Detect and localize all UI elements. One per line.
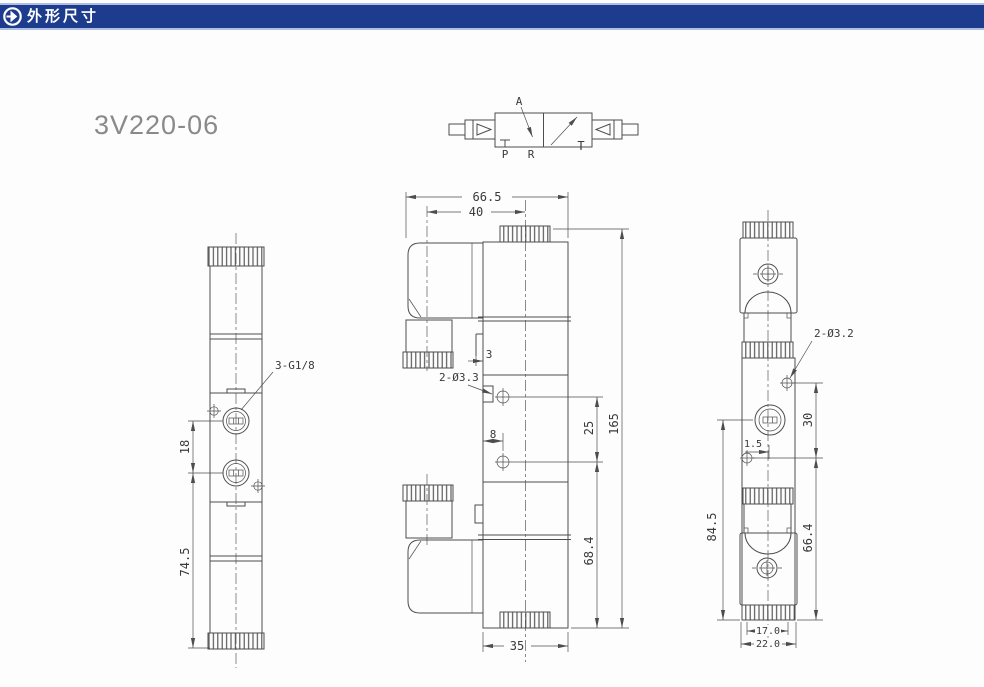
dim-body-width: 35 (510, 639, 524, 653)
dim-body-width-right: 17.0 (756, 626, 780, 637)
section-header-title: 外形尺寸 (27, 9, 99, 24)
middle-view-top-knurl (500, 226, 550, 242)
middle-view-solenoid-top (403, 243, 483, 368)
left-view-pilot-hole-upper (207, 404, 221, 418)
dim-bracket-thickness: 3 (486, 348, 493, 361)
right-view-neck-top (744, 313, 791, 342)
right-view-mount-hole (780, 375, 794, 391)
dim-mount-hole-spacing: 25 (582, 421, 596, 435)
schematic-position-right (544, 113, 593, 147)
schematic-port-r-label: R (528, 148, 535, 161)
left-view-port-label: 3-G1/8 (275, 359, 315, 372)
dim-overall-width-right: 22.0 (756, 639, 780, 650)
dim-port-to-base: 74.5 (178, 548, 192, 577)
right-view-port (755, 405, 785, 435)
schematic-port-a-label: A (516, 95, 523, 108)
schematic-port-t-label: T (577, 139, 584, 153)
schematic-port-p-label: P (502, 148, 509, 161)
left-view-bottom-knurl (208, 633, 264, 649)
right-view-neck-bottom (744, 504, 791, 533)
right-view-bottom-knurl (742, 605, 795, 620)
dim-base-to-hole: 68.4 (582, 537, 596, 566)
right-view-top-knurl (743, 222, 793, 238)
right-view-lower-ring (743, 488, 793, 504)
right-view-connector-top (740, 238, 797, 313)
left-view: 18 74.5 3-G1/8 (178, 233, 315, 668)
dim-overall-height-right: 84.5 (705, 513, 719, 542)
left-view-top-knurl (208, 247, 264, 266)
right-view: 2-Ø3.2 1.5 30 66.4 84.5 17.0 22.0 (705, 210, 854, 650)
dim-overall-width: 66.5 (473, 190, 502, 204)
dimension-drawing: A P R T (0, 0, 984, 687)
middle-view: 66.5 40 3 2-Ø3.3 8 25 68.4 165 35 (403, 190, 629, 662)
schematic-pilot-right (592, 120, 638, 139)
valve-schematic: A P R T (449, 95, 638, 161)
dim-hole-spacing: 30 (801, 413, 815, 427)
dim-hole-edge-offset: 8 (490, 428, 497, 441)
dim-port-spacing: 18 (178, 440, 192, 454)
section-header-bar: 外形尺寸 (0, 3, 984, 30)
middle-view-lower-tab (475, 505, 483, 523)
schematic-pilot-left (449, 120, 495, 139)
middle-view-bracket (476, 334, 483, 356)
middle-view-solenoid-bottom (403, 485, 483, 613)
right-view-connector-bottom (740, 533, 797, 605)
schematic-position-left (495, 107, 544, 147)
dim-port-center-offset: 1.5 (744, 439, 762, 450)
model-number: 3V220-06 (94, 110, 219, 141)
right-view-upper-ring (742, 342, 793, 358)
dim-coil-center-offset: 40 (469, 205, 483, 219)
left-view-pilot-hole-lower (251, 479, 265, 493)
middle-view-bottom-knurl (500, 612, 550, 628)
right-view-mount-hole-label: 2-Ø3.2 (814, 327, 854, 340)
middle-view-mount-hole-label: 2-Ø3.3 (439, 371, 479, 384)
dim-lower-height: 66.4 (801, 524, 815, 553)
dim-overall-height: 165 (607, 413, 621, 435)
arrow-right-circle-icon (2, 6, 23, 27)
